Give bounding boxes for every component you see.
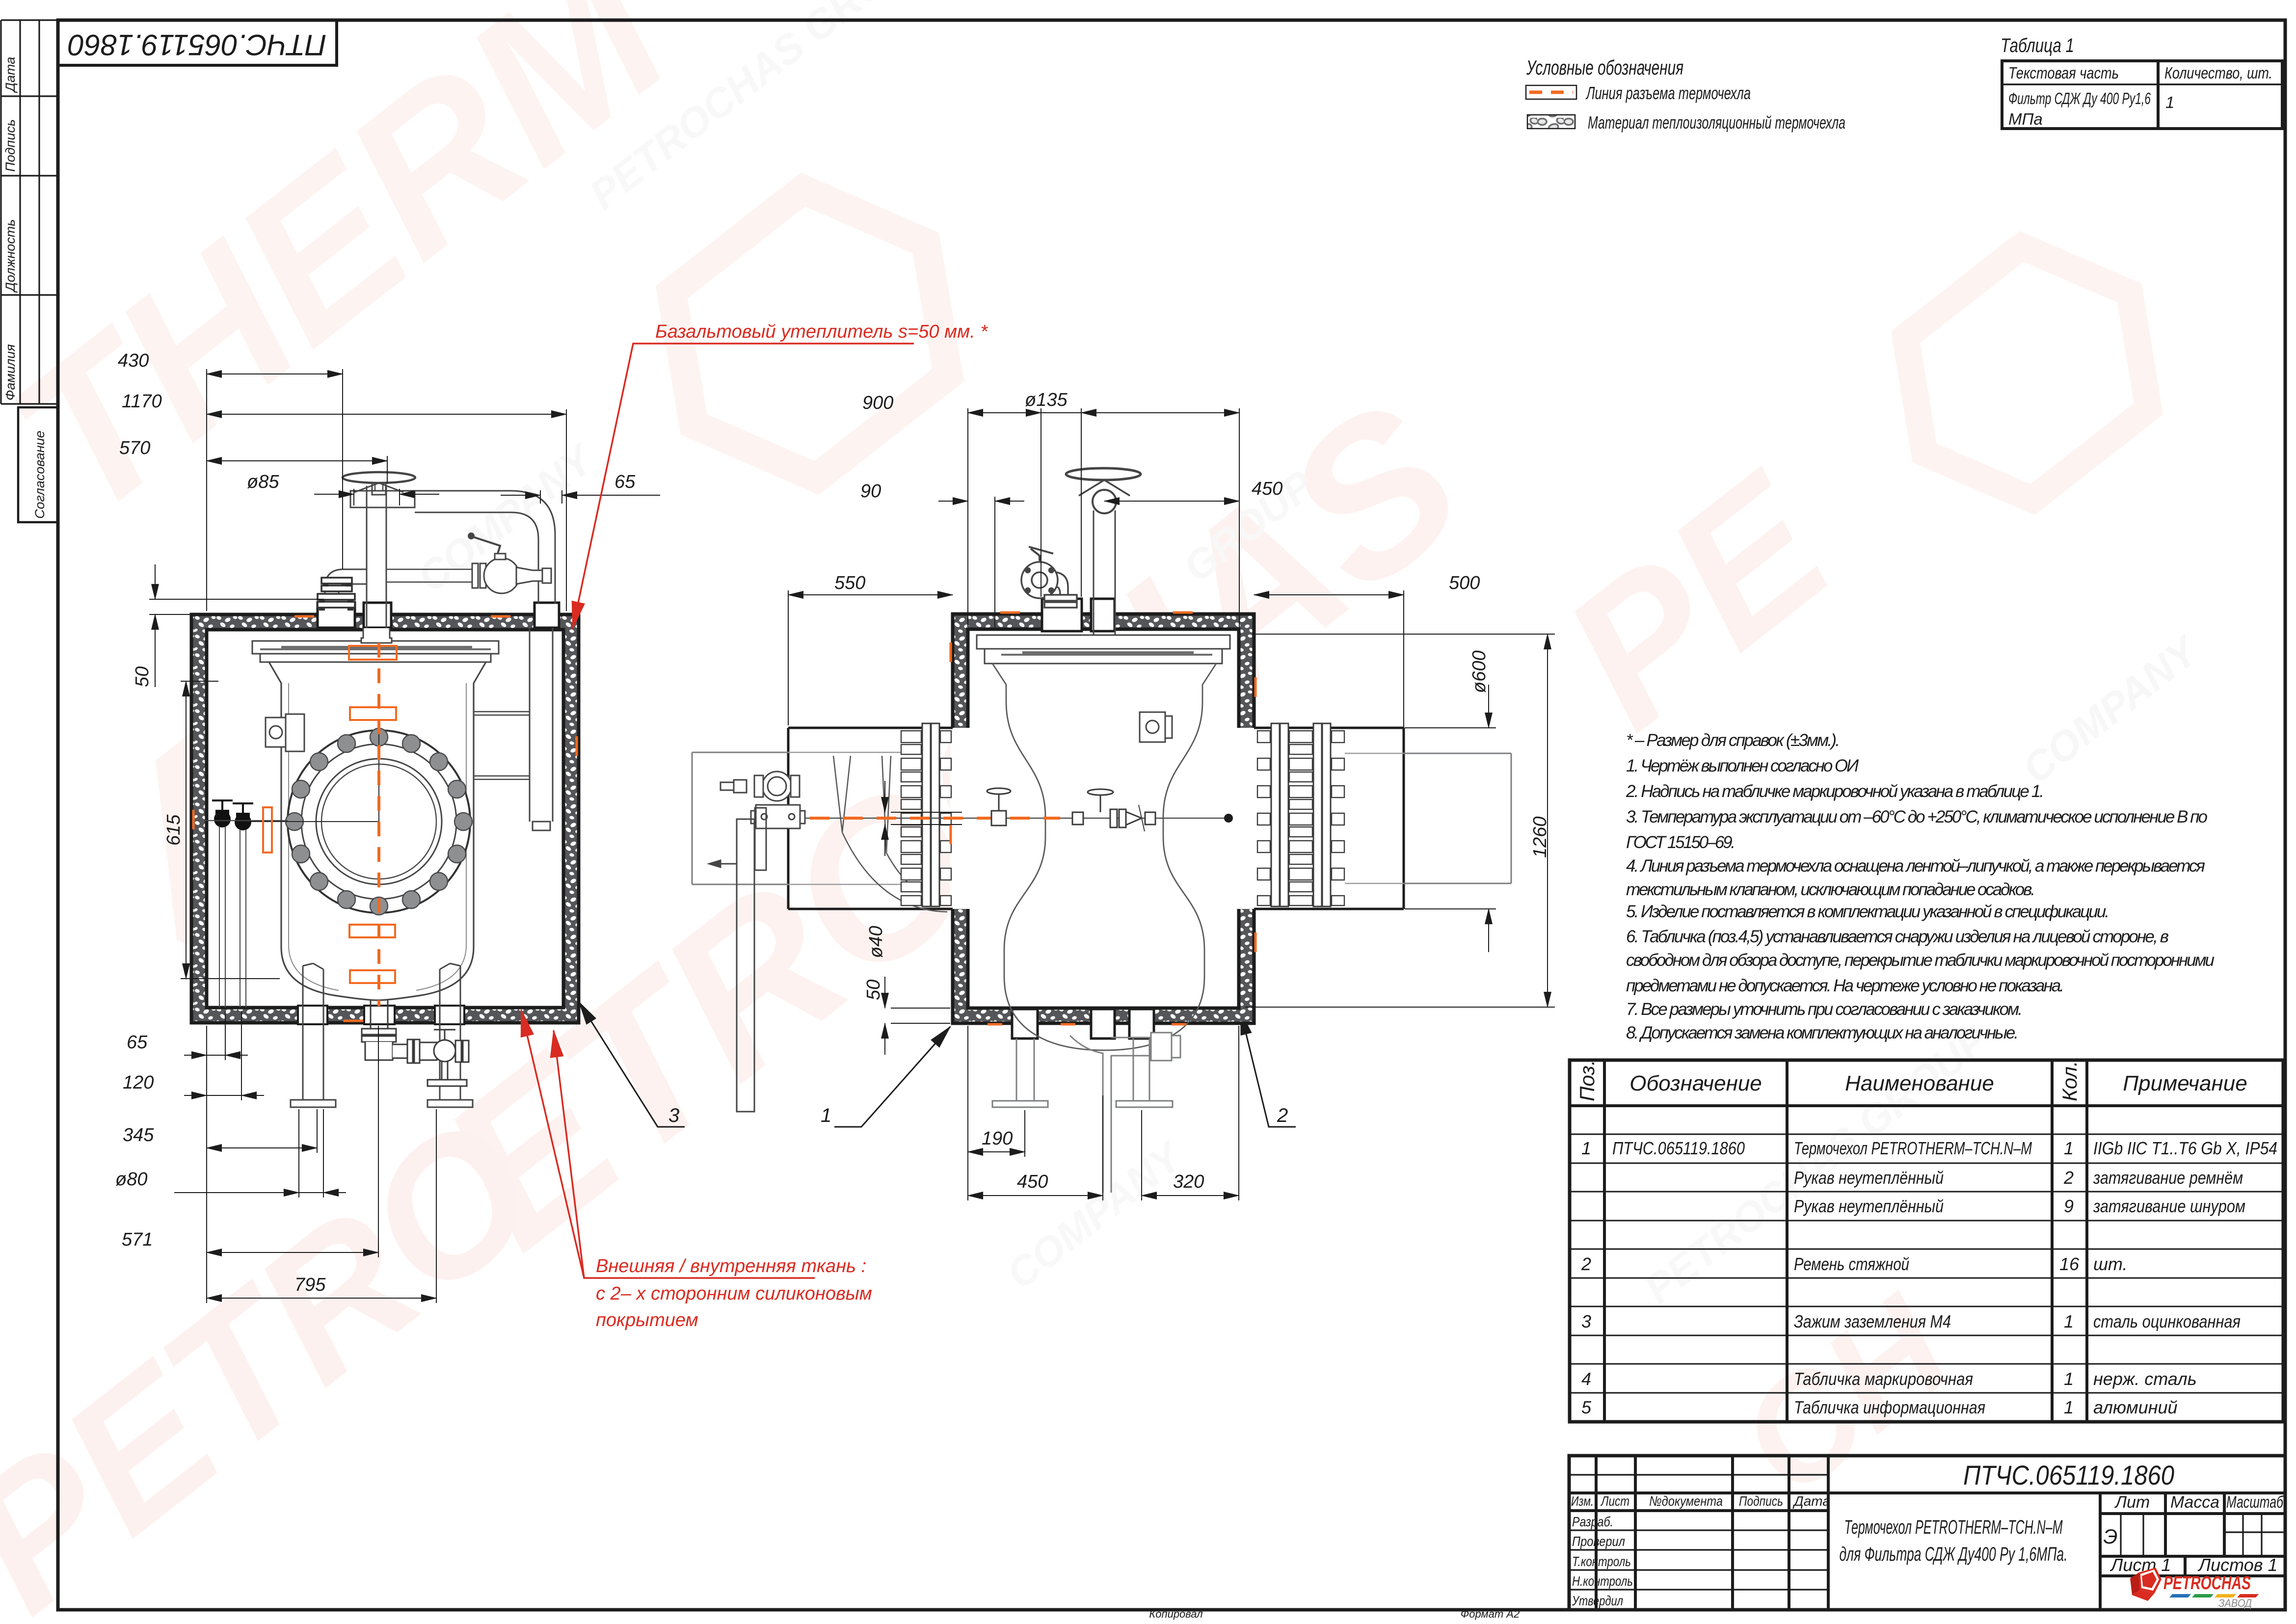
svg-text:IIGb IIC T1..T6 Gb X, IP54: IIGb IIC T1..T6 Gb X, IP54 [2093, 1138, 2277, 1158]
svg-text:текстильным клапаном, исключаю: текстильным клапаном, исключающим попада… [1626, 880, 2035, 899]
svg-text:900: 900 [862, 393, 893, 413]
svg-text:430: 430 [118, 350, 149, 371]
svg-text:1: 1 [2165, 93, 2174, 111]
svg-text:1. Чертёж выполнен согласно ОИ: 1. Чертёж выполнен согласно ОИ [1626, 756, 1859, 775]
svg-text:Базальтовый утеплитель s=50 м: Базальтовый утеплитель s=50 мм. * [655, 321, 988, 342]
svg-text:Согласование: Согласование [32, 430, 47, 519]
svg-text:65: 65 [127, 1032, 148, 1053]
svg-text:450: 450 [1017, 1171, 1048, 1192]
svg-text:4. Линия разъема термочехла ос: 4. Линия разъема термочехла оснащена лен… [1626, 856, 2205, 876]
svg-text:Текстовая часть: Текстовая часть [2008, 64, 2119, 82]
svg-text:2: 2 [1277, 1105, 1288, 1126]
svg-text:ПТЧС.065119.1860: ПТЧС.065119.1860 [1963, 1460, 2174, 1491]
svg-text:120: 120 [123, 1072, 154, 1093]
svg-text:затягивание шнуром: затягивание шнуром [2093, 1196, 2245, 1216]
svg-text:алюминий: алюминий [2093, 1397, 2178, 1417]
svg-text:1: 1 [2064, 1138, 2074, 1158]
svg-text:550: 550 [834, 573, 865, 593]
svg-text:Фамилия: Фамилия [3, 344, 18, 400]
svg-text:Н.контроль: Н.контроль [1572, 1573, 1633, 1589]
svg-text:795: 795 [294, 1275, 326, 1295]
svg-text:3. Температура эксплуатации от: 3. Температура эксплуатации от –60°С до … [1626, 807, 2208, 826]
svg-text:450: 450 [1252, 479, 1282, 499]
svg-text:Подпись: Подпись [1739, 1493, 1783, 1509]
svg-text:Должность: Должность [3, 219, 18, 293]
svg-text:500: 500 [1449, 573, 1480, 593]
svg-text:Дата: Дата [1792, 1493, 1830, 1509]
svg-text:1: 1 [2064, 1311, 2074, 1331]
svg-text:свободном для обзора доступе,: свободном для обзора доступе, перекрытие… [1626, 951, 2215, 970]
svg-text:1170: 1170 [122, 391, 162, 412]
svg-text:Копировал: Копировал [1149, 1608, 1202, 1620]
svg-text:ø80: ø80 [115, 1169, 147, 1190]
svg-text:ЗАВОД: ЗАВОД [2218, 1597, 2252, 1609]
svg-text:покрытием: покрытием [596, 1310, 698, 1331]
svg-text:3: 3 [1581, 1311, 1591, 1331]
svg-text:Фильтр СДЖ Ду 400 Ру1,6: Фильтр СДЖ Ду 400 Ру1,6 [2008, 89, 2151, 107]
svg-text:сталь оцинкованная: сталь оцинкованная [2093, 1311, 2241, 1331]
svg-text:Поз.: Поз. [1575, 1060, 1599, 1101]
svg-text:Лит: Лит [2114, 1493, 2150, 1512]
svg-text:Примечание: Примечание [2123, 1071, 2247, 1095]
svg-text:Лист 1: Лист 1 [2110, 1555, 2171, 1575]
svg-text:65: 65 [614, 472, 636, 492]
svg-text:5. Изделие поставляется в комп: 5. Изделие поставляется в комплектации у… [1626, 902, 2109, 921]
svg-text:ПТЧС.065119.1860: ПТЧС.065119.1860 [1612, 1138, 1745, 1158]
svg-text:Количество, шт.: Количество, шт. [2164, 64, 2272, 82]
svg-text:Термочехол PETROTHERM–TCH.N–M: Термочехол PETROTHERM–TCH.N–M [1844, 1517, 2063, 1538]
svg-text:Масштаб: Масштаб [2226, 1493, 2284, 1512]
svg-text:571: 571 [122, 1229, 153, 1250]
svg-text:50: 50 [863, 980, 884, 1000]
svg-text:* – Размер для справок (±3мм.): * – Размер для справок (±3мм.). [1626, 731, 1840, 750]
svg-text:Наименование: Наименование [1845, 1071, 1994, 1095]
svg-text:Рукав неутеплённый: Рукав неутеплённый [1794, 1196, 1944, 1216]
svg-text:для Фильтра СДЖ Ду400 Ру 1,6МП: для Фильтра СДЖ Ду400 Ру 1,6МПа. [1840, 1544, 2068, 1565]
svg-text:ø135: ø135 [1025, 390, 1068, 410]
svg-text:Подпись: Подпись [3, 119, 18, 172]
svg-text:ПТЧС.065119.1860: ПТЧС.065119.1860 [68, 28, 326, 61]
svg-text:Разраб.: Разраб. [1572, 1514, 1613, 1529]
svg-text:Условные обозначения: Условные обозначения [1526, 56, 1683, 79]
svg-text:Ремень стяжной: Ремень стяжной [1794, 1254, 1909, 1274]
svg-text:615: 615 [163, 814, 184, 846]
svg-text:Утвердил: Утвердил [1572, 1593, 1623, 1608]
svg-text:Масса: Масса [2170, 1493, 2219, 1512]
svg-text:Материал теплоизоляционный тер: Материал теплоизоляционный термочехла [1588, 112, 1845, 133]
svg-text:320: 320 [1173, 1171, 1204, 1192]
svg-text:Обозначение: Обозначение [1629, 1071, 1762, 1095]
svg-text:8. Допускается замена комплект: 8. Допускается замена комплектующих на а… [1626, 1023, 2019, 1042]
svg-text:шт.: шт. [2093, 1254, 2127, 1274]
svg-text:16: 16 [2059, 1254, 2080, 1274]
svg-text:ГОСТ 15150–69.: ГОСТ 15150–69. [1626, 833, 1735, 852]
svg-text:1260: 1260 [1530, 816, 1550, 858]
svg-text:Э: Э [2103, 1525, 2117, 1548]
svg-text:Дата: Дата [3, 57, 18, 93]
svg-text:Лист: Лист [1600, 1493, 1629, 1509]
svg-text:МПа: МПа [2008, 110, 2043, 128]
svg-text:3: 3 [668, 1105, 679, 1126]
svg-text:Проверил: Проверил [1572, 1534, 1625, 1549]
svg-text:ø85: ø85 [247, 472, 279, 492]
svg-text:50: 50 [132, 666, 153, 687]
svg-text:7. Все размеры уточнить при со: 7. Все размеры уточнить при согласовании… [1626, 1000, 2023, 1019]
svg-text:Термочехол PETROTHERM–TCH.N–M: Термочехол PETROTHERM–TCH.N–M [1794, 1138, 2032, 1158]
svg-text:1: 1 [821, 1105, 831, 1126]
svg-text:Кол.: Кол. [2058, 1061, 2081, 1101]
svg-text:ø600: ø600 [1469, 650, 1490, 693]
svg-text:Формат А2: Формат А2 [1461, 1608, 1520, 1620]
svg-text:Табличка информационная: Табличка информационная [1794, 1397, 1985, 1417]
svg-text:6. Табличка (поз.4,5) устанавл: 6. Табличка (поз.4,5) устанавливается сн… [1626, 927, 2169, 946]
svg-text:Листов 1: Листов 1 [2197, 1555, 2277, 1575]
svg-text:Таблица 1: Таблица 1 [2001, 35, 2074, 56]
svg-text:9: 9 [2064, 1196, 2074, 1216]
svg-text:нерж. сталь: нерж. сталь [2093, 1369, 2197, 1389]
svg-text:2. Надпись на табличке маркиро: 2. Надпись на табличке маркировочной ука… [1626, 782, 2044, 801]
svg-text:2: 2 [1581, 1254, 1591, 1274]
svg-text:с 2– х сторонним силиконовым: с 2– х сторонним силиконовым [596, 1283, 872, 1304]
svg-text:190: 190 [982, 1128, 1013, 1149]
svg-text:5: 5 [1581, 1397, 1592, 1417]
svg-text:1: 1 [2064, 1397, 2074, 1417]
svg-text:2: 2 [2063, 1168, 2074, 1188]
svg-text:Т.контроль: Т.контроль [1572, 1554, 1631, 1569]
svg-text:Рукав неутеплённый: Рукав неутеплённый [1794, 1168, 1944, 1188]
svg-text:90: 90 [860, 481, 881, 502]
svg-text:4: 4 [1581, 1369, 1591, 1389]
svg-text:570: 570 [119, 438, 150, 458]
svg-text:1: 1 [1581, 1138, 1591, 1158]
svg-text:Изм.: Изм. [1571, 1493, 1594, 1509]
svg-text:№документа: №документа [1649, 1493, 1723, 1509]
svg-text:Зажим заземления М4: Зажим заземления М4 [1794, 1311, 1951, 1331]
svg-text:PETROCHAS: PETROCHAS [2163, 1573, 2251, 1594]
svg-text:предметами не допускается. На: предметами не допускается. На чертеже ус… [1626, 976, 2064, 995]
svg-text:345: 345 [123, 1125, 154, 1145]
svg-text:затягивание ремнём: затягивание ремнём [2093, 1168, 2243, 1188]
svg-text:ø40: ø40 [866, 926, 886, 958]
svg-text:Линия разъема термочехла: Линия разъема термочехла [1586, 83, 1751, 103]
svg-text:1: 1 [2064, 1369, 2074, 1389]
svg-text:Внешняя / внутренняя ткань :: Внешняя / внутренняя ткань : [596, 1256, 866, 1277]
svg-text:Табличка маркировочная: Табличка маркировочная [1794, 1369, 1973, 1389]
